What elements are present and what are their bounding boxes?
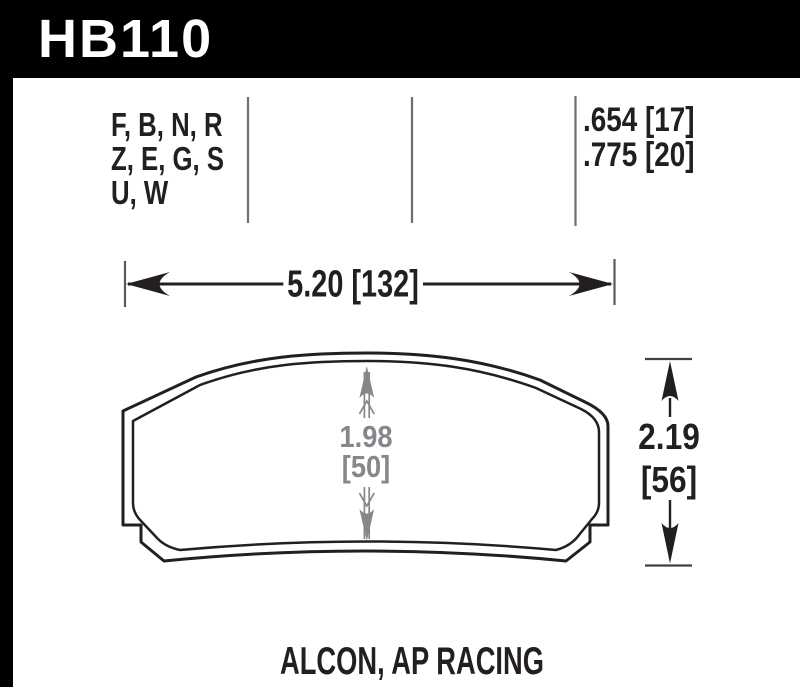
pad-height-inches: 1.98 bbox=[339, 422, 392, 452]
overall-height-inches: 2.19 bbox=[638, 415, 700, 458]
compound-codes-line-2: Z, E, G, S bbox=[111, 142, 224, 176]
pad-height-mm: [50] bbox=[339, 452, 392, 482]
compound-codes: F, B, N, R Z, E, G, S U, W bbox=[111, 108, 256, 210]
width-dimension-label: 5.20 [132] bbox=[283, 264, 422, 307]
application-caption: ALCON, AP RACING bbox=[280, 640, 544, 684]
pad-thickness-line-2: .775 [20] bbox=[583, 138, 695, 173]
compound-codes-line-1: F, B, N, R bbox=[111, 108, 224, 142]
down-arrow-icon bbox=[662, 523, 679, 564]
compound-codes-line-3: U, W bbox=[111, 176, 224, 210]
pad-height-dimension-label: 1.98 [50] bbox=[339, 422, 392, 482]
spec-table-dividers bbox=[248, 96, 576, 226]
up-arrow-icon bbox=[662, 361, 679, 401]
pad-thickness-values: .654 [17] .775 [20] bbox=[583, 103, 719, 173]
overall-height-dimension-label: 2.19 [56] bbox=[638, 415, 700, 501]
overall-height-mm: [56] bbox=[638, 458, 700, 501]
brake-pad-spec-sheet: HB110 bbox=[0, 0, 800, 691]
pad-thickness-line-1: .654 [17] bbox=[583, 103, 695, 138]
